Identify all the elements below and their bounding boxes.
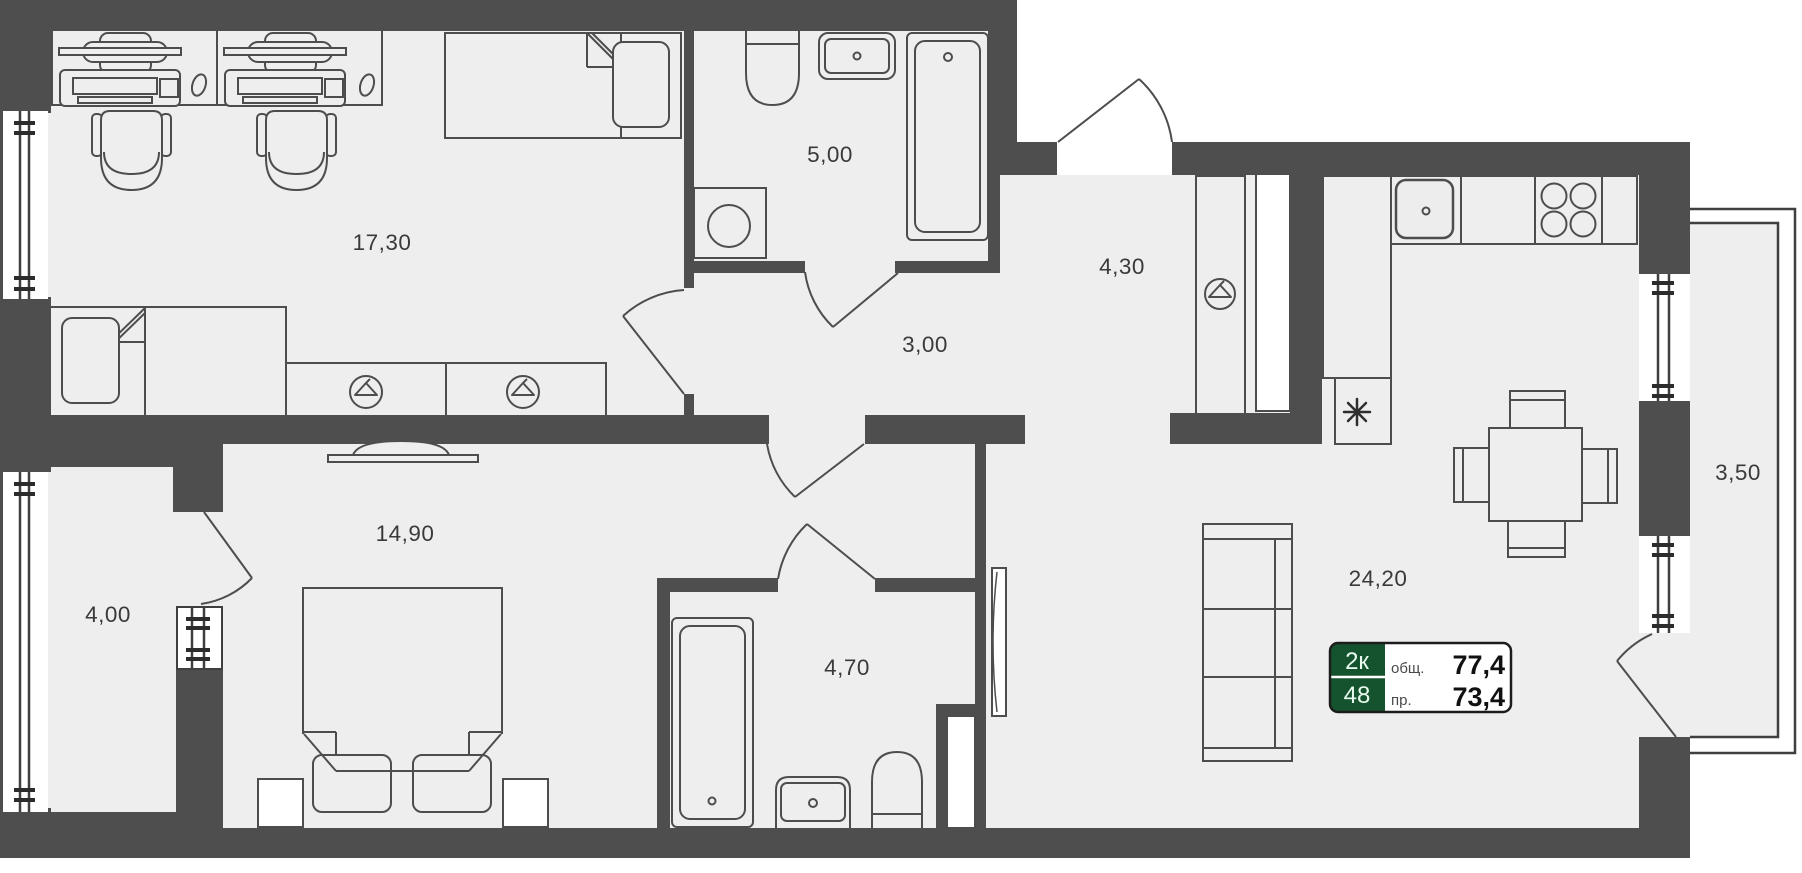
svg-text:5,00: 5,00: [807, 142, 853, 167]
svg-text:3,00: 3,00: [902, 332, 948, 357]
svg-text:4,30: 4,30: [1099, 254, 1145, 279]
svg-text:2к: 2к: [1345, 648, 1369, 675]
svg-text:3,50: 3,50: [1715, 460, 1761, 485]
svg-text:24,20: 24,20: [1349, 566, 1408, 591]
svg-text:пр.: пр.: [1391, 692, 1412, 709]
svg-text:77,4: 77,4: [1452, 650, 1505, 680]
svg-text:48: 48: [1344, 682, 1371, 709]
svg-text:73,4: 73,4: [1452, 682, 1505, 712]
svg-text:14,90: 14,90: [376, 521, 435, 546]
svg-text:4,70: 4,70: [824, 655, 870, 680]
svg-text:17,30: 17,30: [353, 230, 412, 255]
svg-text:4,00: 4,00: [85, 602, 131, 627]
svg-text:общ.: общ.: [1391, 660, 1424, 677]
